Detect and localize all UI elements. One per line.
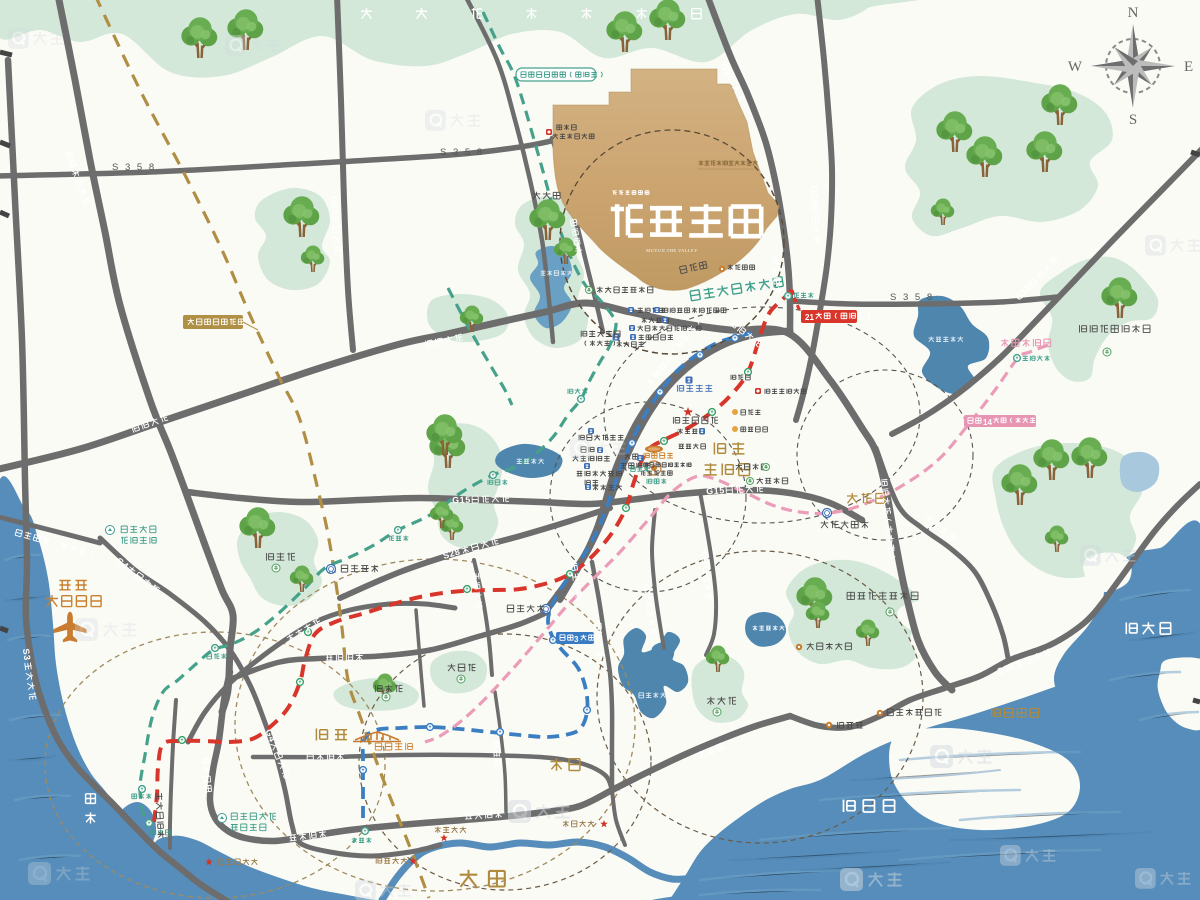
svg-text:S3: S3 (21, 648, 33, 661)
svg-text:G15: G15 (452, 495, 471, 506)
svg-text:G15: G15 (706, 485, 725, 496)
svg-text:S: S (1129, 112, 1137, 128)
svg-text:MUYUN THE VALLEY: MUYUN THE VALLEY (646, 248, 698, 253)
svg-text:E: E (1184, 59, 1193, 75)
svg-text:S 3 5 8: S 3 5 8 (112, 162, 156, 173)
svg-text:14: 14 (983, 418, 992, 427)
svg-text:S 3 5 8: S 3 5 8 (440, 147, 484, 158)
svg-text:G25: G25 (809, 186, 820, 205)
svg-text:N: N (1128, 5, 1139, 21)
svg-text:S 3 5 8: S 3 5 8 (890, 292, 934, 303)
svg-text:21: 21 (805, 313, 814, 322)
svg-text:G94: G94 (329, 196, 340, 215)
svg-text:W: W (1068, 59, 1083, 75)
svg-text:3: 3 (574, 635, 579, 644)
